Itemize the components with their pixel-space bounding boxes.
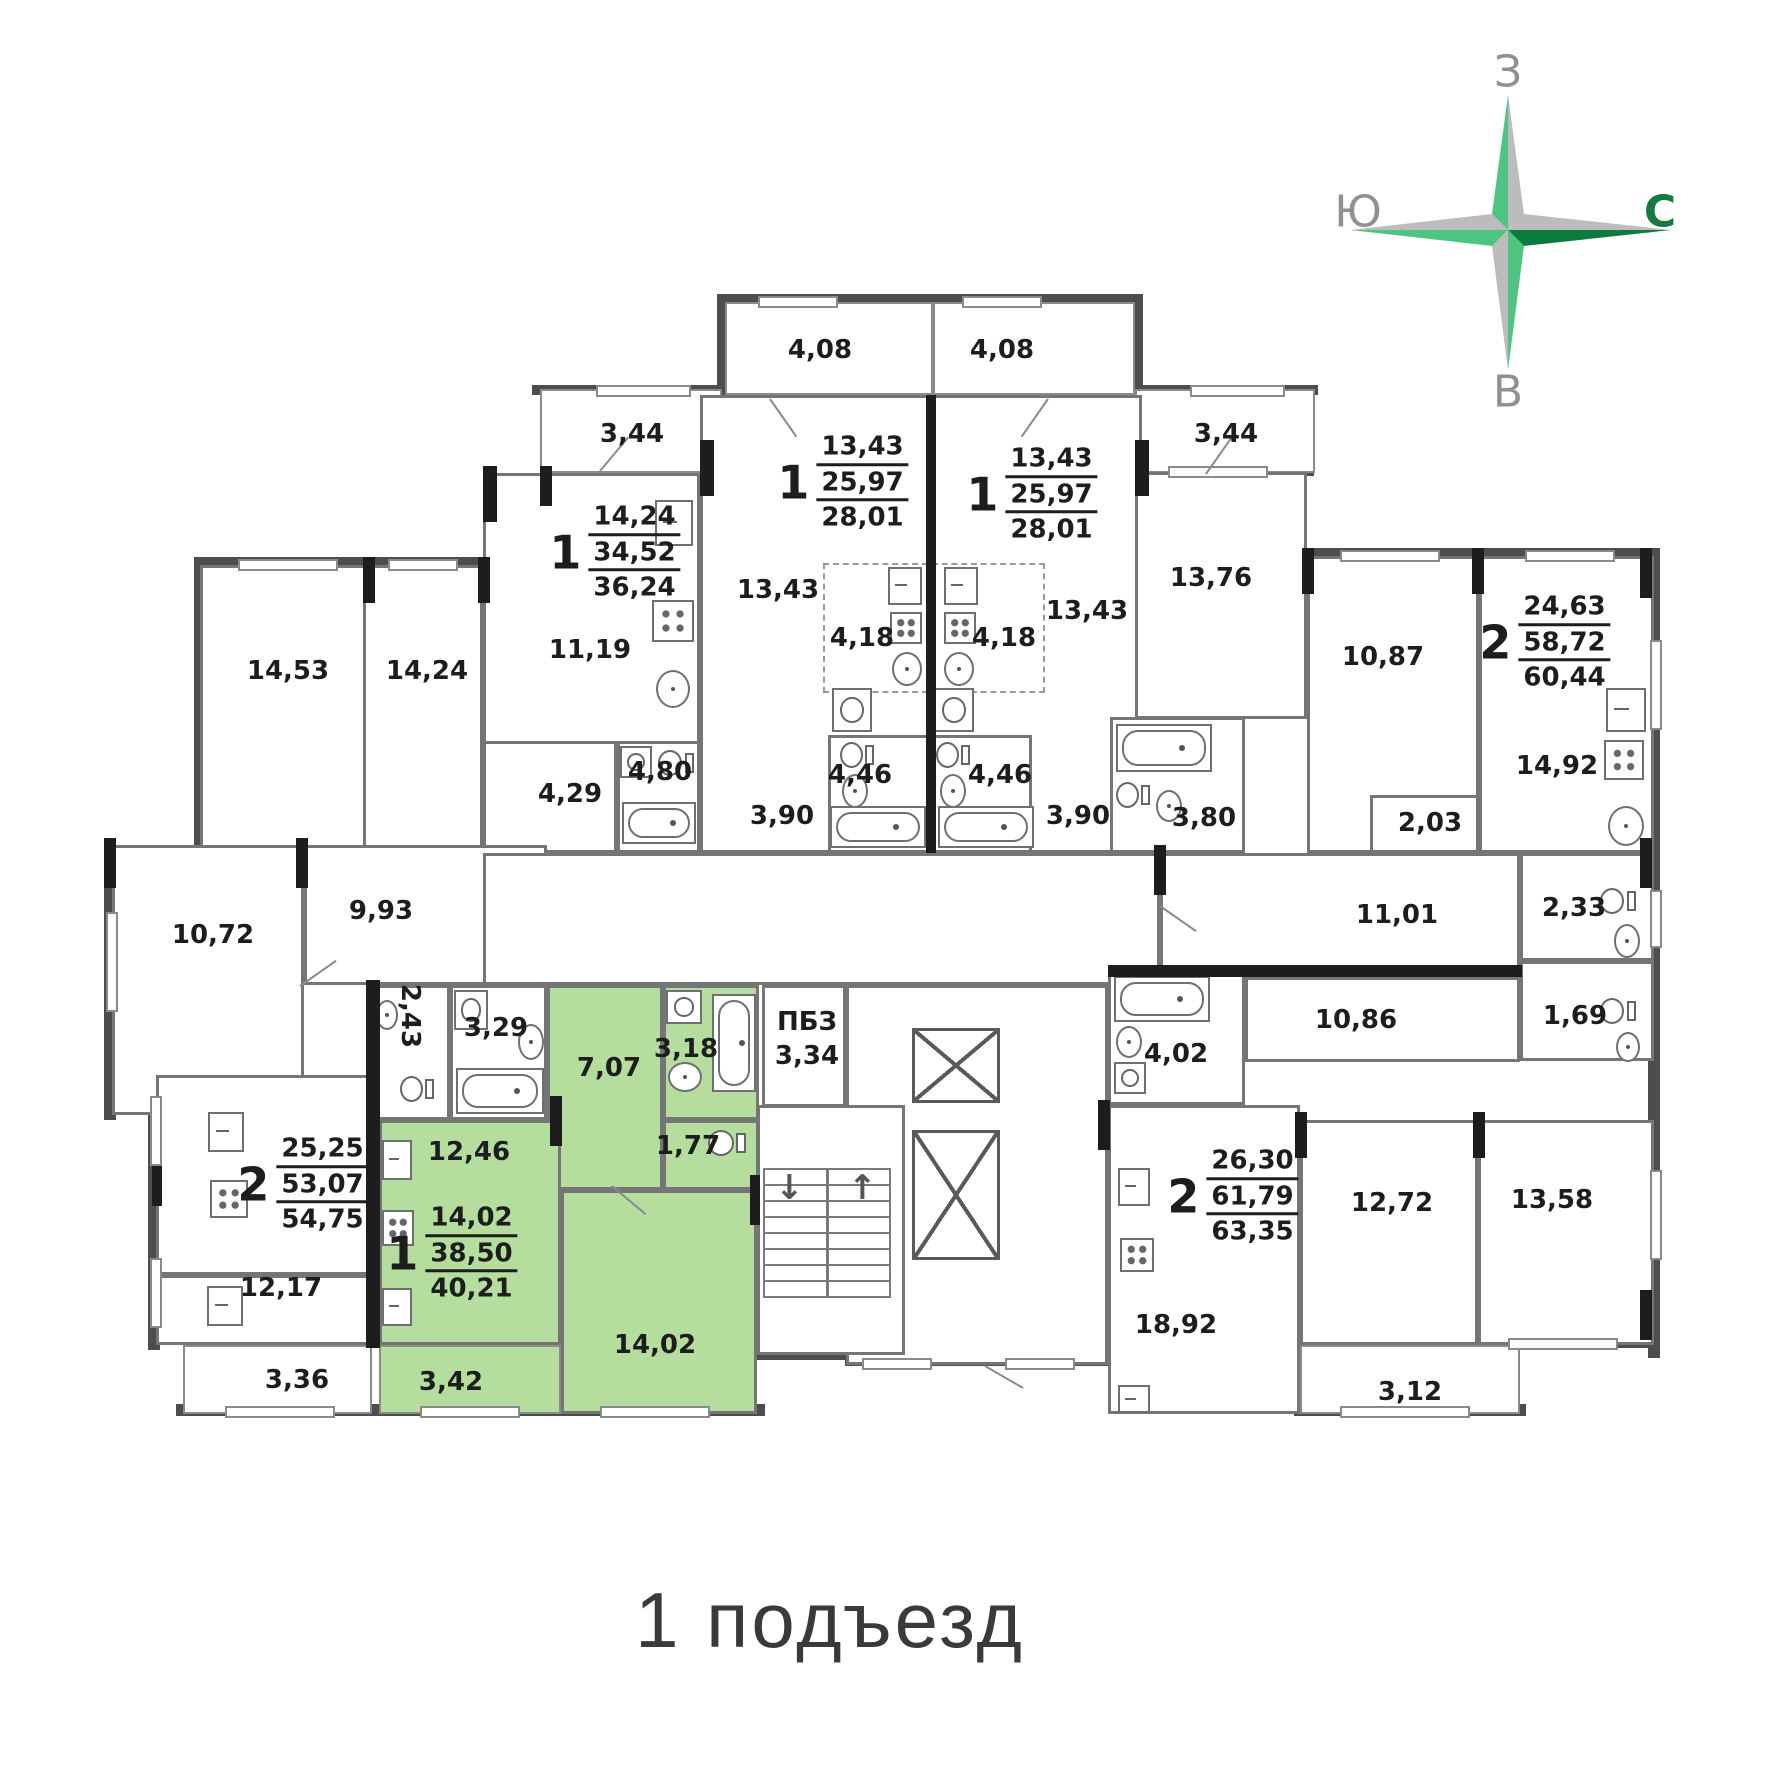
apartment-total-area: 60,44: [1518, 661, 1610, 694]
window: [1340, 1406, 1470, 1418]
washing-machine-icon: [666, 990, 702, 1024]
fridge-icon: [944, 567, 978, 605]
corridor: [483, 853, 1160, 985]
window: [150, 1258, 162, 1328]
fire-safe-zone-label: ПБЗ: [777, 1007, 837, 1037]
stairs-down-arrow-icon: ↓: [775, 1168, 804, 1208]
room-area-label: 14,53: [247, 656, 329, 686]
apartment-total-area: 63,35: [1206, 1215, 1298, 1248]
bathtub-icon: [830, 806, 926, 848]
room: [1135, 472, 1307, 719]
fridge-icon: [207, 1286, 243, 1326]
hall-area-label: 4,29: [538, 779, 602, 809]
apartment-info-highlighted: 1 14,02 38,50 40,21: [386, 1201, 517, 1305]
balcony-area-label: 4,08: [970, 335, 1034, 365]
sink-icon: [1614, 924, 1640, 958]
apartment-area: 25,97: [1005, 478, 1097, 514]
room-area-label: 10,72: [172, 920, 254, 950]
balcony-area-label: 3,44: [600, 419, 664, 449]
wall-pier: [1098, 1100, 1110, 1150]
wall-pier: [1473, 1112, 1485, 1158]
compass-south-label: Ю: [1334, 187, 1382, 238]
stove-icon: [1120, 1238, 1154, 1272]
bathroom-area-label: 4,02: [1144, 1039, 1208, 1069]
bathtub-icon: [1116, 724, 1212, 772]
room-area-label: 14,24: [386, 656, 468, 686]
window: [238, 559, 338, 571]
apartment-rooms-count: 1: [549, 529, 581, 575]
apartment-info: 1 13,43 25,97 28,01: [777, 430, 908, 534]
room: [200, 565, 370, 855]
apartment-rooms-count: 2: [1479, 619, 1511, 665]
room-area-label: 13,76: [1170, 563, 1252, 593]
wall-pier: [1640, 838, 1652, 888]
apartment-total-area: 28,01: [816, 501, 908, 534]
apartment-living-area: 13,43: [816, 430, 908, 466]
apartment-total-area: 54,75: [276, 1203, 368, 1236]
bathroom-area-label: 3,80: [1172, 803, 1236, 833]
apartment-living-area: 24,63: [1518, 590, 1610, 626]
room-area-label: 12,17: [240, 1273, 322, 1303]
wall-pier: [1302, 548, 1314, 594]
bathroom-area-label: 2,33: [1542, 893, 1606, 923]
apartment-area: 25,97: [816, 466, 908, 502]
hall-area-label: 7,07: [577, 1053, 641, 1083]
sink-icon: [940, 774, 966, 808]
room-area-label: 12,72: [1351, 1188, 1433, 1218]
wall-pier: [1640, 1290, 1652, 1340]
apartment-info: 2 26,30 61,79 63,35: [1167, 1144, 1298, 1248]
kitchen-area-label: 12,46: [428, 1137, 510, 1167]
bathroom-area-label: 4,80: [628, 757, 692, 787]
compass-west-label: З: [1494, 47, 1522, 98]
window: [1190, 385, 1285, 397]
fire-safe-zone-area-label: 3,34: [775, 1041, 839, 1071]
hall-area-label: 3,90: [750, 801, 814, 831]
apartment-total-area: 40,21: [425, 1272, 517, 1305]
hall-area-label: 10,86: [1315, 1005, 1397, 1035]
wall-pier: [363, 557, 375, 603]
wall-pier: [700, 440, 714, 496]
fridge-icon: [888, 567, 922, 605]
apartment-rooms-count: 2: [1167, 1173, 1199, 1219]
apartment-area: 34,52: [588, 536, 680, 572]
window: [1525, 550, 1615, 562]
stove-icon: [890, 612, 922, 644]
wall-pier: [1108, 965, 1522, 977]
balcony-area-label: 3,44: [1194, 419, 1258, 449]
apartment-living-area: 13,43: [1005, 442, 1097, 478]
apartment-area: 38,50: [425, 1237, 517, 1273]
sink-icon: [1116, 1026, 1142, 1058]
window: [420, 1406, 520, 1418]
apartment-info: 2 25,25 53,07 54,75: [237, 1132, 368, 1236]
bathroom-area-label: 4,46: [968, 760, 1032, 790]
apartment-living-area: 14,02: [425, 1201, 517, 1237]
wall-pier: [1472, 548, 1484, 594]
wall-pier: [483, 466, 497, 522]
hall-area-label: 2,03: [1398, 808, 1462, 838]
apartment-info: 2 24,63 58,72 60,44: [1479, 590, 1610, 694]
window: [1005, 1358, 1075, 1370]
fridge-icon: [1606, 688, 1646, 732]
hall-area-label: 9,93: [349, 896, 413, 926]
wall-pier: [550, 1096, 562, 1146]
window: [862, 1358, 932, 1370]
room-area-label: 14,02: [614, 1330, 696, 1360]
window: [1650, 640, 1662, 730]
sink-icon: [668, 1062, 702, 1092]
hall-area-label: 11,01: [1356, 900, 1438, 930]
apartment-area: 53,07: [276, 1168, 368, 1204]
room-area-label: 11,19: [549, 635, 631, 665]
toilet-icon: [1116, 782, 1150, 808]
wall-pier: [1640, 548, 1652, 598]
balcony-area-label: 3,42: [419, 1367, 483, 1397]
window: [106, 912, 118, 1012]
apartment-rooms-count: 1: [777, 459, 809, 505]
elevator-icon: [912, 1130, 1000, 1260]
apartment-living-area: 14,24: [588, 500, 680, 536]
window: [962, 296, 1042, 308]
bathtub-icon: [938, 806, 1034, 848]
washing-machine-icon: [1114, 1062, 1146, 1094]
window: [1508, 1338, 1618, 1350]
fridge-icon: [1118, 1168, 1150, 1206]
compass-east-label: В: [1493, 367, 1523, 418]
window: [758, 296, 838, 308]
bathtub-icon: [712, 994, 756, 1092]
room-area-label: 10,87: [1342, 642, 1424, 672]
toilet-icon: [936, 742, 970, 768]
apartment-total-area: 28,01: [1005, 513, 1097, 546]
stove-icon: [1604, 740, 1644, 780]
window: [150, 1096, 162, 1166]
kitchen-area-label: 4,18: [830, 623, 894, 653]
stove-icon: [652, 600, 694, 642]
wall-pier: [926, 395, 936, 853]
room-area-label: 13,43: [1046, 596, 1128, 626]
hall-area-label: 3,90: [1046, 801, 1110, 831]
compass-rose: З Ю С В: [1330, 40, 1690, 420]
window: [388, 559, 458, 571]
apartment-rooms-count: 2: [237, 1161, 269, 1207]
bathtub-icon: [1114, 976, 1210, 1022]
wall-pier: [478, 557, 490, 603]
balcony-area-label: 4,08: [788, 335, 852, 365]
wall-pier: [1135, 440, 1149, 496]
compass-north-label: С: [1644, 187, 1676, 238]
highlighted-hallway: [547, 985, 663, 1190]
balcony-area-label: 3,12: [1378, 1377, 1442, 1407]
sink-icon: [892, 652, 922, 686]
window: [1168, 466, 1268, 478]
room: [1478, 1120, 1654, 1345]
apartment-area: 58,72: [1518, 626, 1610, 662]
apartment-rooms-count: 1: [966, 471, 998, 517]
wc-area-label: 2,43: [395, 984, 425, 1048]
wall-pier: [1154, 845, 1166, 895]
wc-area-label: 1,69: [1543, 1001, 1607, 1031]
window: [596, 385, 691, 397]
page-title: 1 подъезд: [635, 1575, 1025, 1666]
elevator-icon: [912, 1028, 1000, 1103]
kitchen-area-label: 4,18: [972, 623, 1036, 653]
highlighted-room: [561, 1190, 757, 1414]
bathroom-area-label: 3,18: [654, 1034, 718, 1064]
washing-machine-icon: [934, 688, 974, 732]
kitchen-area-label: 14,92: [1516, 751, 1598, 781]
room-area-label: 13,43: [737, 575, 819, 605]
room-area-label: 18,92: [1135, 1310, 1217, 1340]
sink-icon: [656, 670, 690, 708]
apartment-living-area: 25,25: [276, 1132, 368, 1168]
apartment-info: 1 13,43 25,97 28,01: [966, 442, 1097, 546]
window: [225, 1406, 335, 1418]
bathroom-area-label: 4,46: [828, 760, 892, 790]
window: [1340, 550, 1440, 562]
window: [1650, 890, 1662, 948]
washing-machine-icon: [832, 688, 872, 732]
window: [600, 1406, 710, 1418]
room-area-label: 13,58: [1511, 1185, 1593, 1215]
window: [1650, 1170, 1662, 1260]
apartment-total-area: 36,24: [588, 571, 680, 604]
balcony-area-label: 3,36: [265, 1365, 329, 1395]
room: [1300, 1120, 1478, 1345]
apartment-rooms-count: 1: [386, 1230, 418, 1276]
bathtub-icon: [456, 1068, 544, 1114]
wall-pier: [104, 838, 116, 888]
sink-icon: [1616, 1032, 1640, 1062]
room: [363, 565, 483, 855]
wc-area-label: 1,77: [656, 1131, 720, 1161]
wall-pier: [296, 838, 308, 888]
corridor: [1160, 853, 1520, 977]
apartment-living-area: 26,30: [1206, 1144, 1298, 1180]
bathroom-area-label: 3,29: [464, 1013, 528, 1043]
apartment-info: 1 14,24 34,52 36,24: [549, 500, 680, 604]
fridge-icon: [1118, 1385, 1150, 1413]
bathtub-icon: [622, 802, 696, 844]
floorplan-page: ↓ ↑ 4,08 4,08 3,44 3,44 14,53 14,24 11,1…: [0, 0, 1776, 1776]
apartment-area: 61,79: [1206, 1180, 1298, 1216]
wall-pier: [152, 1160, 162, 1206]
fridge-icon: [382, 1140, 412, 1180]
wall-pier: [750, 1175, 760, 1225]
toilet-icon: [400, 1076, 434, 1102]
sink-icon: [944, 652, 974, 686]
stairs-up-arrow-icon: ↑: [848, 1168, 877, 1208]
sink-icon: [1608, 806, 1644, 846]
